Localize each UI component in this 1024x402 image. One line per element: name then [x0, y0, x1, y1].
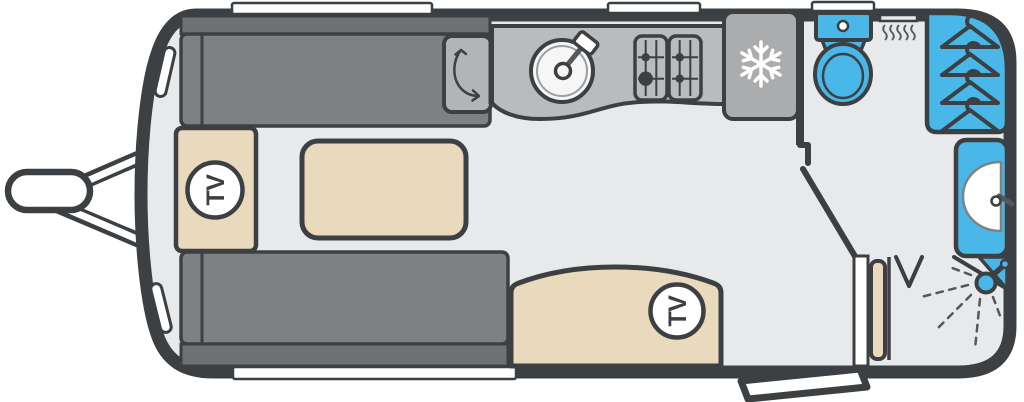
rear-chest: TV [511, 267, 721, 366]
tv-point-front-icon: TV [188, 163, 243, 218]
fridge [724, 12, 798, 119]
front-chest: TV [176, 128, 256, 251]
tv-label-rear: TV [664, 295, 692, 327]
window-top-washroom [812, 2, 874, 11]
hitch-icon [8, 172, 90, 210]
caravan-floorplan: TV [0, 0, 1024, 402]
window-top-kitchen [608, 3, 700, 13]
tv-point-rear-icon: TV [651, 285, 704, 338]
door-leaf [871, 261, 885, 359]
window-top-front [232, 3, 432, 14]
toilet-icon [815, 13, 871, 104]
washbasin-icon [956, 140, 1012, 256]
hob-icon [635, 36, 701, 100]
window-bottom-front [233, 367, 516, 379]
sofa-front-bottom [181, 252, 508, 366]
wardrobe [927, 13, 1007, 132]
top-locker [444, 36, 491, 112]
tv-label-front: TV [202, 174, 230, 206]
table [302, 141, 466, 238]
